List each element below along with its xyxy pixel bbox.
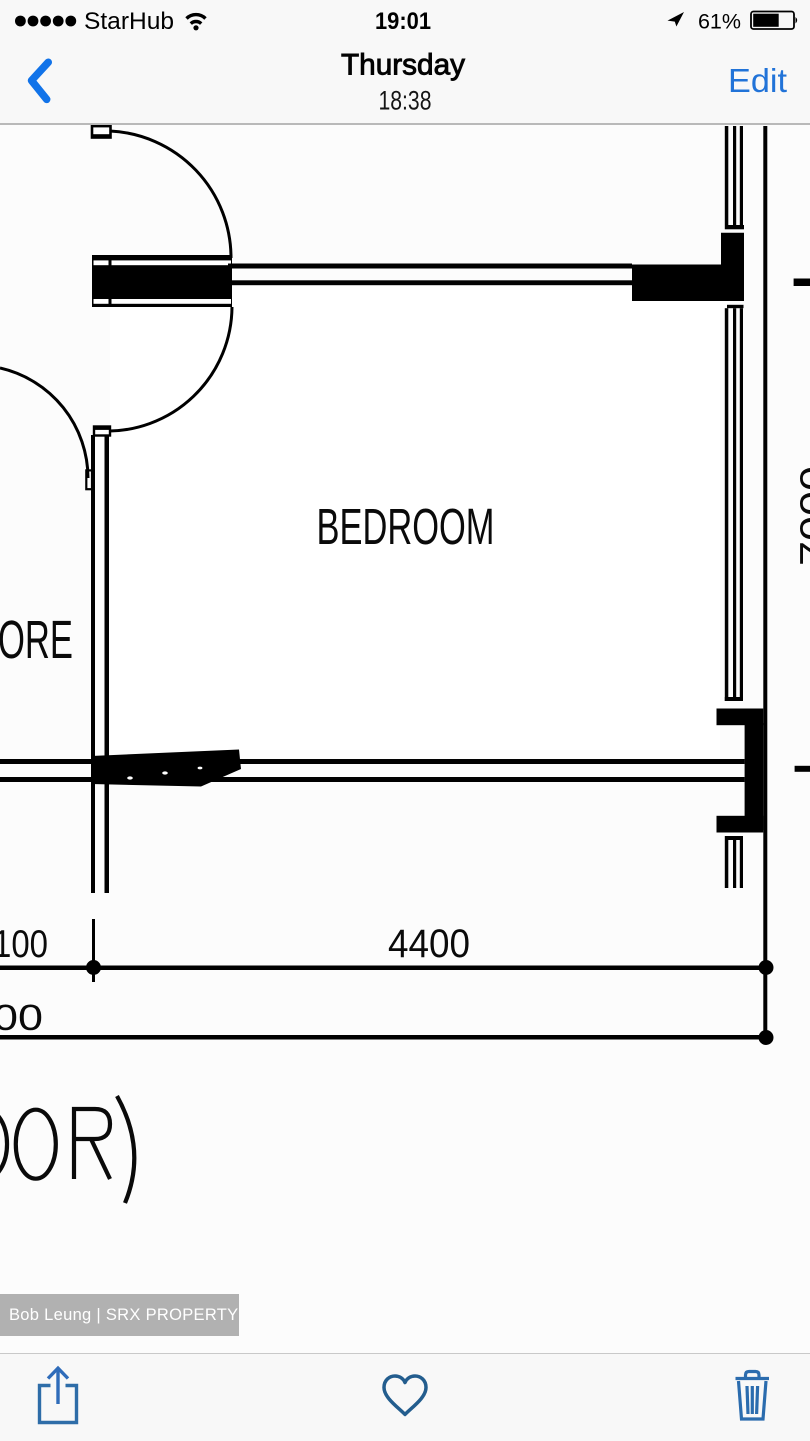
svg-text:7000: 7000 xyxy=(793,466,810,566)
svg-text:ORE: ORE xyxy=(0,610,73,670)
svg-text:Edit: Edit xyxy=(728,62,787,99)
svg-text:61%: 61% xyxy=(698,10,741,34)
svg-text:4400: 4400 xyxy=(388,922,470,966)
svg-text:Thursday: Thursday xyxy=(341,48,465,81)
svg-text:00: 00 xyxy=(0,997,43,1038)
svg-text:19:01: 19:01 xyxy=(375,8,431,35)
svg-text:StarHub: StarHub xyxy=(84,8,174,35)
svg-text:BEDROOM: BEDROOM xyxy=(317,498,495,555)
svg-text:100: 100 xyxy=(0,923,48,966)
svg-text:18:38: 18:38 xyxy=(379,85,432,115)
